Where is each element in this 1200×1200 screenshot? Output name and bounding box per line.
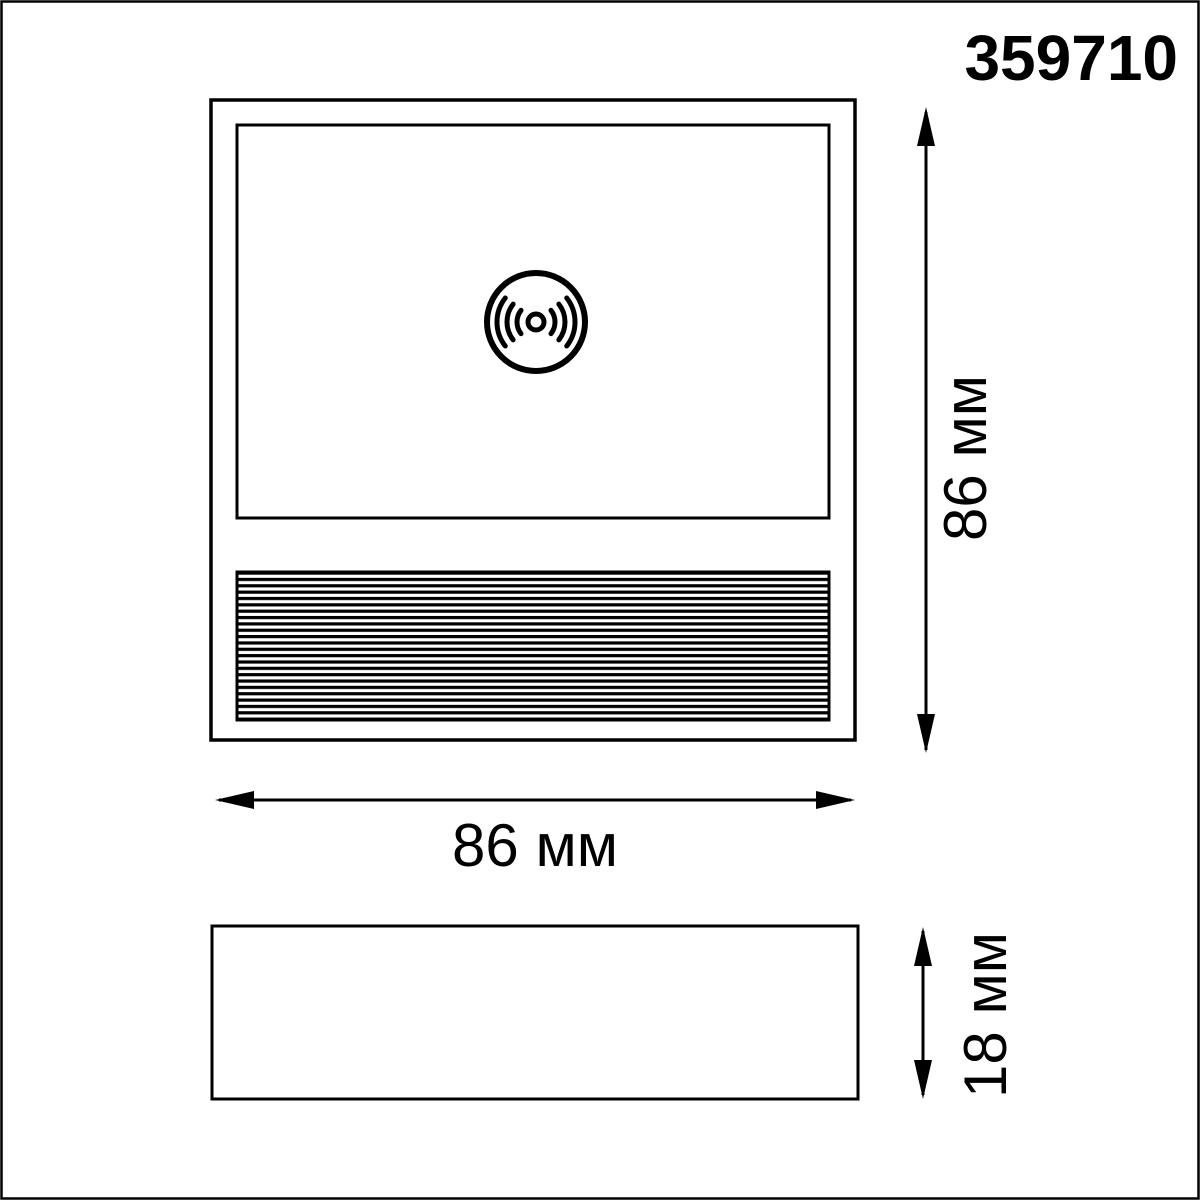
arrowhead-right-icon [816,791,855,809]
depth-dimension-label: 18 мм [952,932,1019,1098]
wave-left-middle [507,304,513,340]
wave-left-outer [497,298,505,346]
side-view-outline [212,926,858,1099]
wave-right-inner [551,310,555,333]
height-dimension-label: 86 мм [932,375,999,541]
width-dimension-label: 86 мм [452,812,618,879]
wave-right-outer [567,298,575,346]
arrowhead-up-icon [917,107,935,146]
sensor-outer-circle [487,273,585,371]
drawing-canvas: 86 мм 86 мм 18 мм [0,0,1200,1200]
sensor-center-dot [528,314,544,330]
arrowhead-left-icon [215,791,254,809]
arrowhead-down-icon [914,1060,932,1099]
wireless-sensor-icon [487,273,585,371]
arrowhead-up-icon [914,927,932,966]
height-dimension: 86 мм [917,107,999,753]
depth-dimension: 18 мм [914,927,1019,1099]
width-dimension: 86 мм [215,791,855,879]
louver-grille [237,572,829,720]
wave-right-middle [559,304,565,340]
technical-drawing-page: 359710 [0,0,1200,1200]
arrowhead-down-icon [917,714,935,753]
front-panel-inset [237,125,829,518]
wave-left-inner [517,310,521,333]
